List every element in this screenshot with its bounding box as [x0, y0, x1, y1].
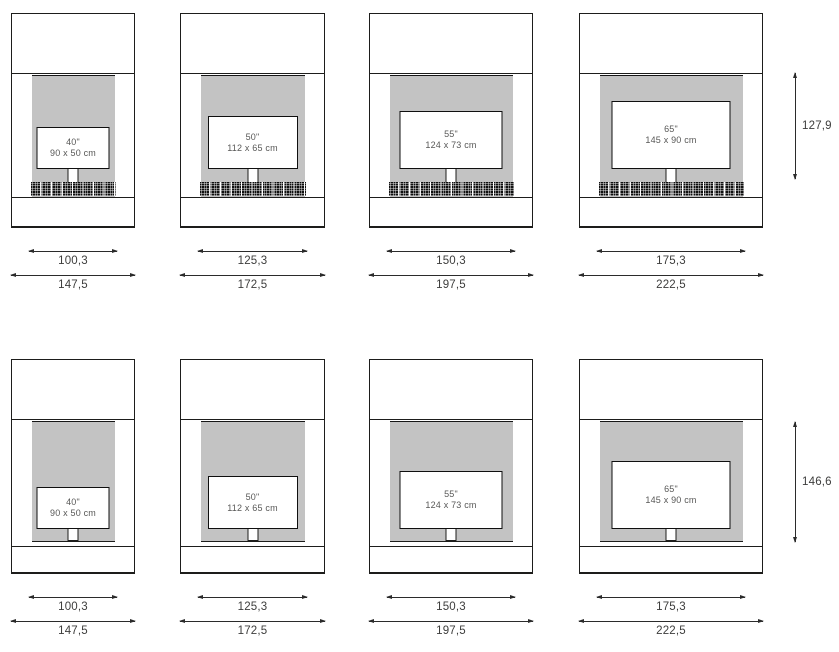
- shelf-line: [370, 546, 532, 547]
- cabinet-frame: 55" 124 x 73 cm: [369, 359, 533, 574]
- outer-width-value: 147,5: [11, 625, 135, 637]
- speaker-grille: [199, 182, 306, 196]
- inner-width-dimension: 150,3: [369, 597, 533, 617]
- dimension-arrow: [795, 422, 796, 542]
- height-value: 127,9: [802, 120, 832, 132]
- tv-dimensions-label: 124 x 73 cm: [401, 140, 502, 151]
- outer-width-dimension: 172,5: [180, 275, 325, 295]
- cabinet-frame: 50" 112 x 65 cm: [180, 13, 325, 228]
- outer-width-value: 197,5: [369, 279, 533, 291]
- tv-screen: 55" 124 x 73 cm: [400, 111, 503, 169]
- tv-dimensions-label: 112 x 65 cm: [209, 503, 297, 514]
- dimension-arrow: [29, 251, 117, 252]
- inner-width-value: 150,3: [369, 601, 533, 613]
- tv-screen: 65" 145 x 90 cm: [612, 461, 731, 529]
- tv-stand: [68, 527, 79, 541]
- cabinet-65in-speaker: 65" 145 x 90 cm 175,3 222,5: [579, 13, 763, 313]
- dimension-arrow: [795, 73, 796, 179]
- cabinet-50in-speaker: 50" 112 x 65 cm 125,3 172,5: [180, 13, 325, 313]
- dimension-arrow: [369, 275, 533, 276]
- tv-size-label: 65": [613, 484, 730, 495]
- outer-width-dimension: 197,5: [369, 275, 533, 295]
- shelf-line: [580, 197, 762, 198]
- dimension-arrow: [29, 597, 117, 598]
- inner-width-value: 175,3: [579, 255, 763, 267]
- inner-width-dimension: 100,3: [11, 251, 135, 271]
- recess-panel: 65" 145 x 90 cm: [600, 421, 743, 542]
- inner-width-dimension: 150,3: [369, 251, 533, 271]
- dimension-arrow: [597, 251, 745, 252]
- tv-stand: [666, 527, 677, 541]
- tv-cabinet-dimension-diagram: 40" 90 x 50 cm 100,3 147,5: [0, 0, 839, 652]
- shelf-line: [370, 197, 532, 198]
- tv-size-label: 55": [401, 129, 502, 140]
- inner-width-value: 175,3: [579, 601, 763, 613]
- shelf-line: [12, 197, 134, 198]
- outer-width-value: 222,5: [579, 279, 763, 291]
- outer-width-dimension: 222,5: [579, 621, 763, 641]
- speaker-grille: [598, 182, 744, 196]
- inner-width-value: 150,3: [369, 255, 533, 267]
- recess-panel: 65" 145 x 90 cm: [600, 75, 743, 197]
- inner-width-dimension: 125,3: [180, 597, 325, 617]
- recess-panel: 55" 124 x 73 cm: [390, 421, 513, 542]
- cabinet-frame: 65" 145 x 90 cm: [579, 13, 763, 228]
- speaker-grille: [388, 182, 514, 196]
- cabinet-frame: 65" 145 x 90 cm: [579, 359, 763, 574]
- tv-stand: [247, 527, 258, 541]
- top-panel: [181, 14, 324, 74]
- dimension-arrow: [387, 597, 515, 598]
- tv-screen: 40" 90 x 50 cm: [37, 487, 110, 529]
- cabinet-65in-open: 65" 145 x 90 cm 175,3 222,5: [579, 359, 763, 652]
- shelf-line: [580, 546, 762, 547]
- outer-width-dimension: 147,5: [11, 275, 135, 295]
- tv-size-label: 65": [613, 124, 730, 135]
- height-value: 146,6: [802, 476, 832, 488]
- outer-width-value: 197,5: [369, 625, 533, 637]
- tv-screen: 65" 145 x 90 cm: [612, 101, 731, 169]
- tv-screen: 55" 124 x 73 cm: [400, 471, 503, 529]
- shelf-line: [181, 546, 324, 547]
- dimension-arrow: [369, 621, 533, 622]
- cabinet-55in-speaker: 55" 124 x 73 cm 150,3 197,5: [369, 13, 533, 313]
- recess-panel: 40" 90 x 50 cm: [32, 75, 115, 197]
- row-with-speaker: 40" 90 x 50 cm 100,3 147,5: [0, 13, 839, 313]
- outer-width-value: 147,5: [11, 279, 135, 291]
- tv-size-label: 50": [209, 132, 297, 143]
- inner-width-dimension: 125,3: [180, 251, 325, 271]
- shelf-line: [181, 197, 324, 198]
- cabinet-55in-open: 55" 124 x 73 cm 150,3 197,5: [369, 359, 533, 652]
- inner-width-dimension: 175,3: [579, 597, 763, 617]
- recess-panel: 50" 112 x 65 cm: [201, 421, 305, 542]
- shelf-line: [12, 546, 134, 547]
- cabinet-40in-speaker: 40" 90 x 50 cm 100,3 147,5: [11, 13, 135, 313]
- dimension-arrow: [198, 597, 307, 598]
- dimension-arrow: [180, 621, 325, 622]
- dimension-arrow: [180, 275, 325, 276]
- tv-dimensions-label: 112 x 65 cm: [209, 143, 297, 154]
- row-without-speaker: 40" 90 x 50 cm 100,3 147,5: [0, 359, 839, 652]
- tv-size-label: 40": [38, 137, 109, 148]
- tv-screen: 50" 112 x 65 cm: [208, 116, 298, 169]
- inner-width-value: 100,3: [11, 601, 135, 613]
- tv-size-label: 55": [401, 489, 502, 500]
- cabinet-frame: 50" 112 x 65 cm: [180, 359, 325, 574]
- cabinet-frame: 40" 90 x 50 cm: [11, 13, 135, 228]
- top-panel: [580, 360, 762, 420]
- outer-width-dimension: 197,5: [369, 621, 533, 641]
- top-panel: [181, 360, 324, 420]
- outer-width-dimension: 172,5: [180, 621, 325, 641]
- tv-dimensions-label: 90 x 50 cm: [38, 148, 109, 159]
- cabinet-50in-open: 50" 112 x 65 cm 125,3 172,5: [180, 359, 325, 652]
- cabinet-frame: 40" 90 x 50 cm: [11, 359, 135, 574]
- height-dimension: 146,6: [795, 422, 835, 542]
- dimension-arrow: [11, 621, 135, 622]
- top-panel: [580, 14, 762, 74]
- inner-width-value: 100,3: [11, 255, 135, 267]
- outer-width-value: 172,5: [180, 279, 325, 291]
- outer-width-dimension: 222,5: [579, 275, 763, 295]
- tv-dimensions-label: 124 x 73 cm: [401, 500, 502, 511]
- top-panel: [12, 14, 134, 74]
- speaker-grille: [30, 182, 116, 196]
- tv-dimensions-label: 145 x 90 cm: [613, 135, 730, 146]
- tv-screen: 40" 90 x 50 cm: [37, 127, 110, 169]
- tv-stand: [446, 527, 457, 541]
- outer-width-value: 172,5: [180, 625, 325, 637]
- outer-width-dimension: 147,5: [11, 621, 135, 641]
- recess-panel: 40" 90 x 50 cm: [32, 421, 115, 542]
- tv-size-label: 50": [209, 492, 297, 503]
- dimension-arrow: [11, 275, 135, 276]
- outer-width-value: 222,5: [579, 625, 763, 637]
- tv-size-label: 40": [38, 497, 109, 508]
- cabinet-40in-open: 40" 90 x 50 cm 100,3 147,5: [11, 359, 135, 652]
- top-panel: [370, 360, 532, 420]
- cabinet-frame: 55" 124 x 73 cm: [369, 13, 533, 228]
- tv-dimensions-label: 90 x 50 cm: [38, 508, 109, 519]
- tv-screen: 50" 112 x 65 cm: [208, 476, 298, 529]
- inner-width-value: 125,3: [180, 255, 325, 267]
- top-panel: [370, 14, 532, 74]
- dimension-arrow: [198, 251, 307, 252]
- inner-width-dimension: 175,3: [579, 251, 763, 271]
- dimension-arrow: [387, 251, 515, 252]
- tv-dimensions-label: 145 x 90 cm: [613, 495, 730, 506]
- dimension-arrow: [597, 597, 745, 598]
- inner-width-dimension: 100,3: [11, 597, 135, 617]
- recess-panel: 55" 124 x 73 cm: [390, 75, 513, 197]
- inner-width-value: 125,3: [180, 601, 325, 613]
- top-panel: [12, 360, 134, 420]
- dimension-arrow: [579, 275, 763, 276]
- recess-panel: 50" 112 x 65 cm: [201, 75, 305, 197]
- dimension-arrow: [579, 621, 763, 622]
- height-dimension: 127,9: [795, 73, 835, 179]
